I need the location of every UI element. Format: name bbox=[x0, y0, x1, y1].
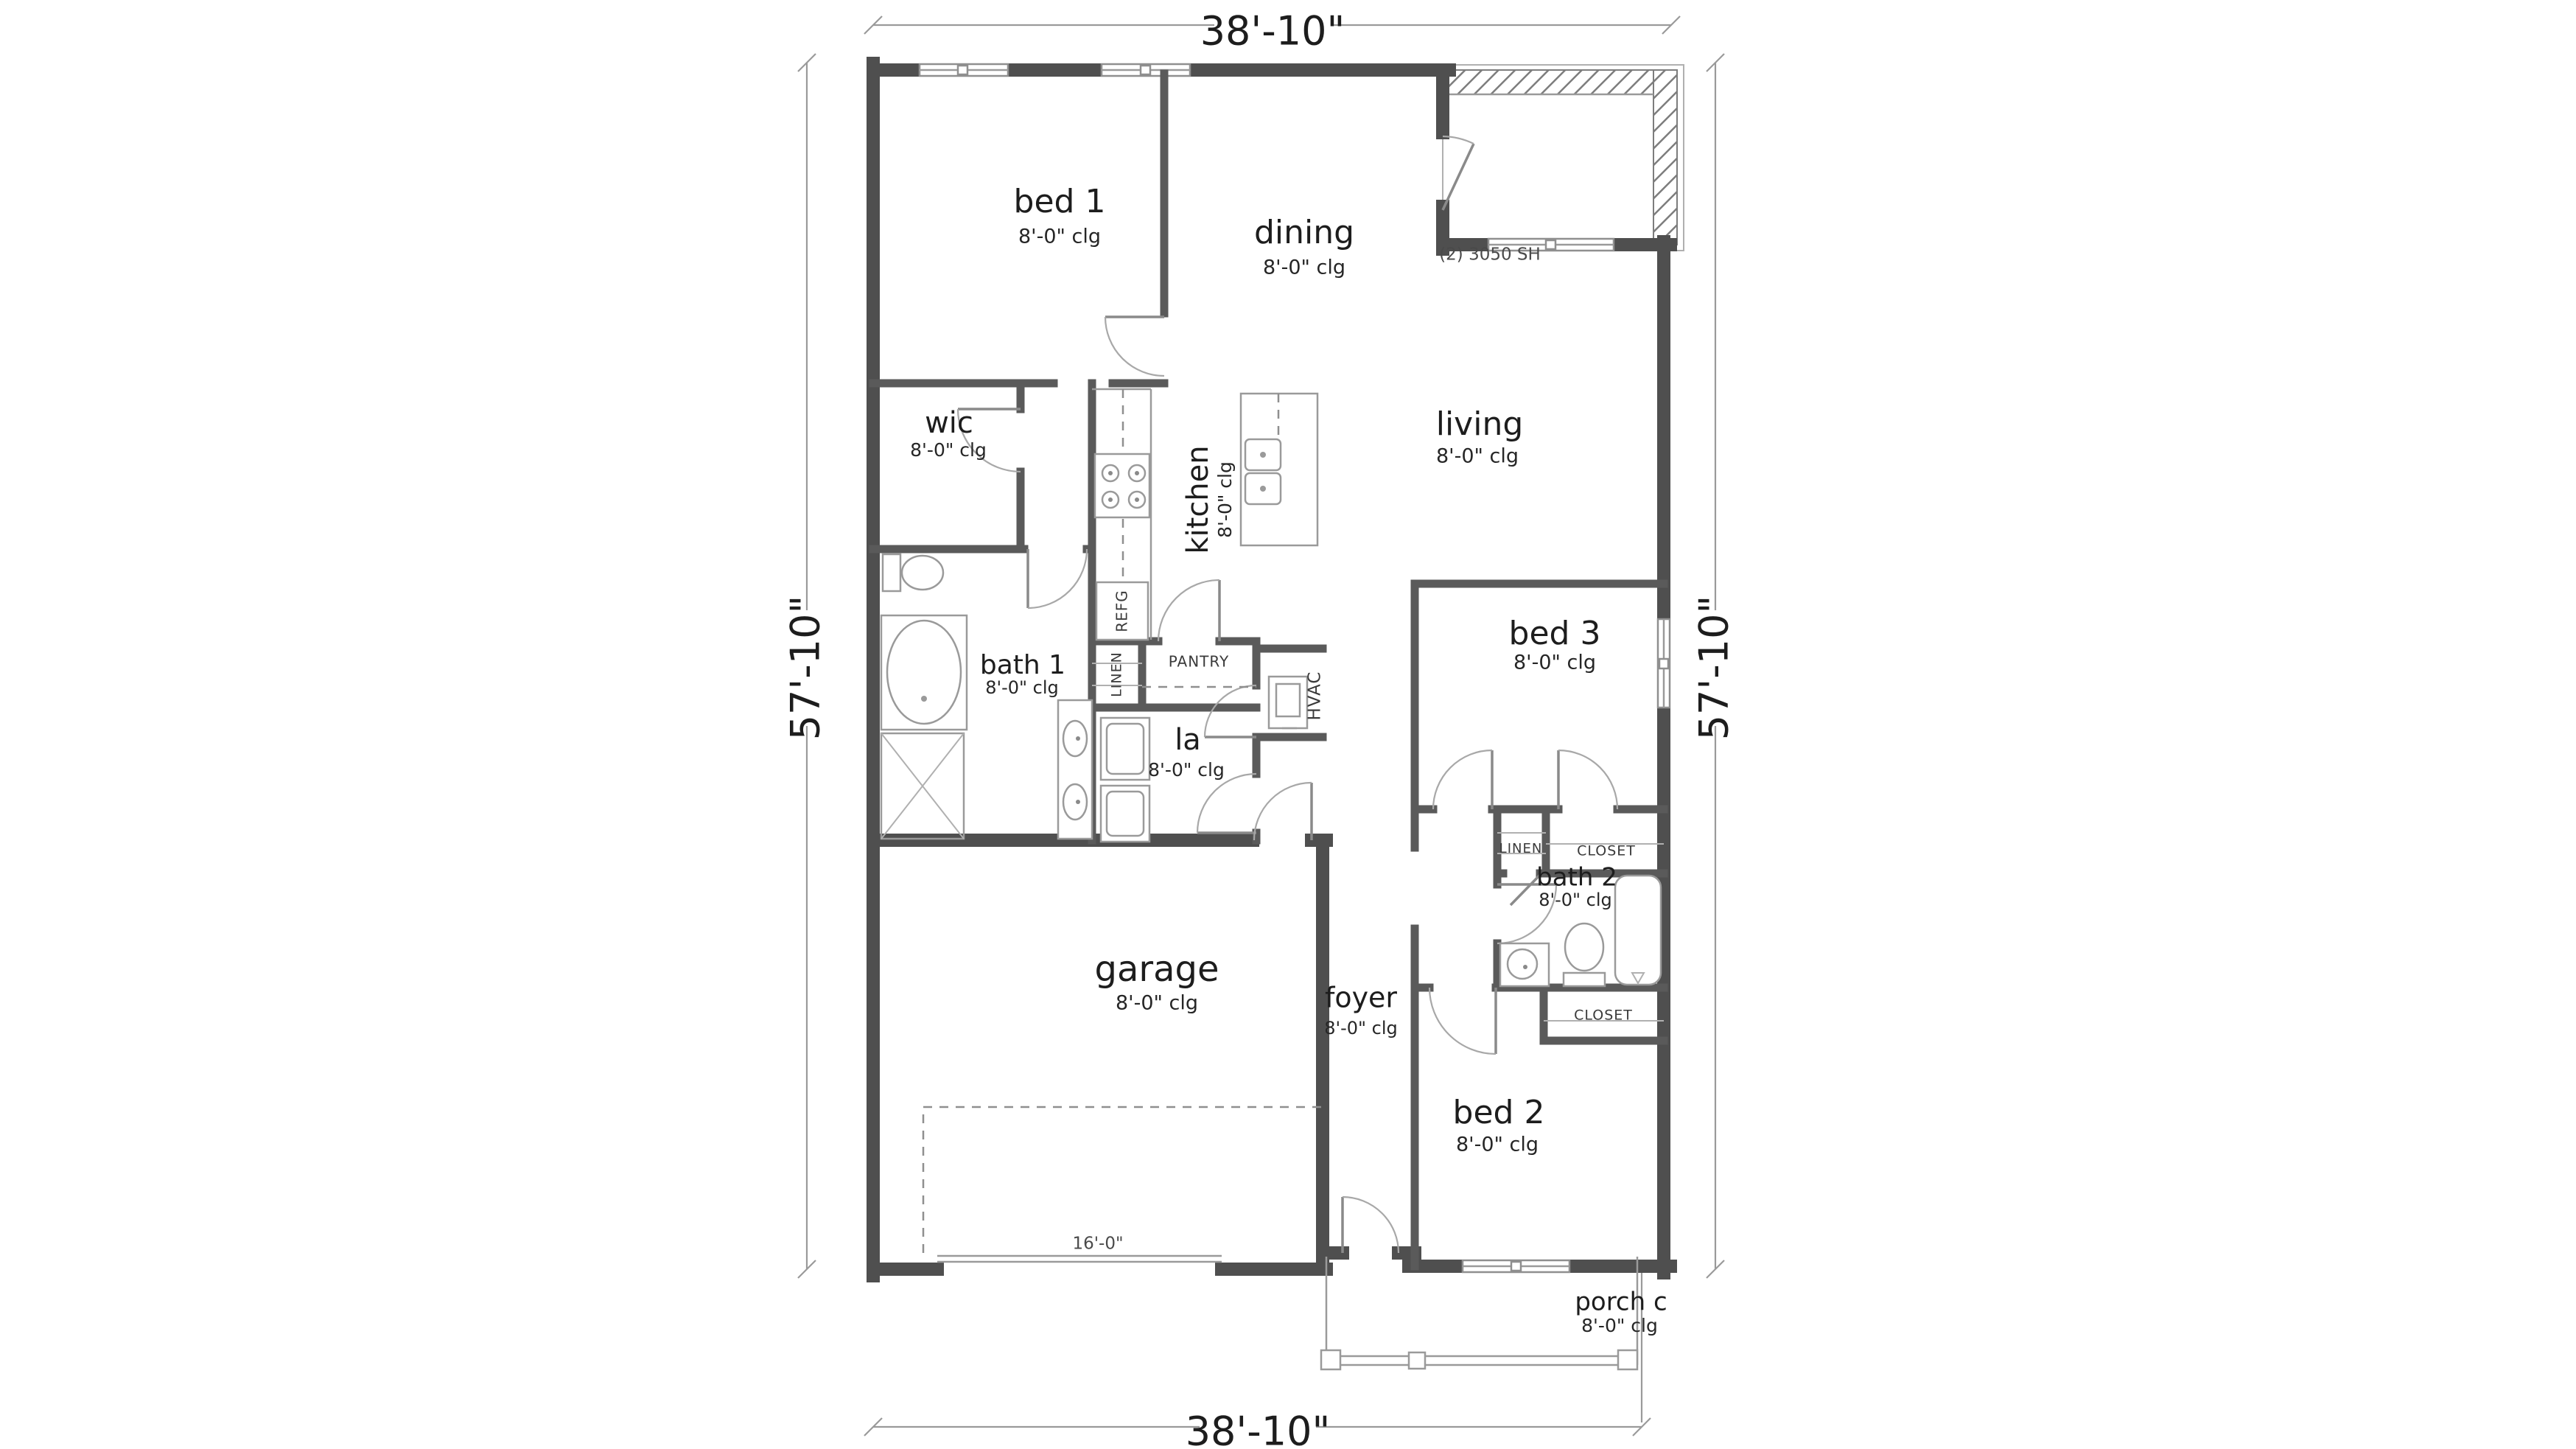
door-pantry bbox=[1158, 580, 1219, 641]
room-label-bed-1: bed 1 bbox=[1014, 183, 1106, 220]
window-bed2 bbox=[1463, 1260, 1569, 1272]
refrigerator: REFG bbox=[1096, 582, 1148, 640]
door-bath1 bbox=[1028, 549, 1087, 608]
dimension-bottom: 38'-10" bbox=[1186, 1408, 1331, 1449]
refrigerator-label: REFG bbox=[1113, 590, 1131, 632]
room-label-bed-3: bed 3 bbox=[1509, 615, 1601, 652]
closet-bath2-label: CLOSET bbox=[1577, 843, 1636, 859]
room-clg-foyer: 8'-0" clg bbox=[1324, 1018, 1398, 1038]
floor-plan-page: 38'-10" 38'-10" 57'-10" 57'-10" bbox=[0, 0, 2576, 1449]
room-clg-wic: 8'-0" clg bbox=[910, 439, 987, 461]
pantry-label: PANTRY bbox=[1169, 653, 1229, 671]
garage-door: 16'-0" bbox=[937, 1235, 1222, 1263]
room-clg-bath-2: 8'-0" clg bbox=[1539, 890, 1612, 910]
door-front-entry bbox=[1343, 1197, 1399, 1253]
door-dining-porch bbox=[1443, 136, 1474, 210]
garden-tub bbox=[881, 615, 967, 730]
tub-bath2 bbox=[1615, 876, 1661, 985]
vanity-bath1 bbox=[1058, 700, 1092, 839]
dimension-left: 57'-10" bbox=[783, 596, 829, 741]
room-label-dining: dining bbox=[1254, 214, 1354, 251]
room-clg-bed-2: 8'-0" clg bbox=[1456, 1134, 1539, 1156]
room-label-wic: wic bbox=[925, 406, 973, 440]
garage-door-label: 16'-0" bbox=[1072, 1235, 1123, 1254]
door-bed1 bbox=[1105, 317, 1164, 376]
room-clg-bed-3: 8'-0" clg bbox=[1513, 652, 1596, 674]
shower bbox=[881, 733, 964, 839]
room-label-porch-c: porch c bbox=[1575, 1288, 1667, 1317]
room-label-bath-2: bath 2 bbox=[1536, 863, 1617, 893]
bath2-fixtures bbox=[1497, 833, 1664, 1021]
room-label-bath-1: bath 1 bbox=[980, 650, 1065, 680]
linen-hall-label: LINEN bbox=[1109, 652, 1125, 697]
room-clg-dining: 8'-0" clg bbox=[1263, 256, 1345, 279]
dryer bbox=[1101, 786, 1149, 842]
garage-elements: 16'-0" bbox=[923, 1107, 1323, 1262]
linen-bath2-label: LINEN bbox=[1499, 841, 1543, 856]
room-label-la: la bbox=[1175, 723, 1201, 757]
room-clg-bed-1: 8'-0" clg bbox=[1018, 226, 1101, 248]
door-bed3 bbox=[1433, 750, 1492, 809]
door-garage-entry bbox=[1254, 783, 1312, 840]
hvac-label: HVAC bbox=[1306, 671, 1325, 721]
room-clg-bath-1: 8'-0" clg bbox=[985, 677, 1059, 698]
stove bbox=[1095, 454, 1149, 517]
window-bed1 bbox=[920, 64, 1008, 76]
dimension-right: 57'-10" bbox=[1691, 596, 1737, 741]
toilet-bath2 bbox=[1564, 923, 1605, 986]
door-bed2 bbox=[1429, 988, 1496, 1054]
vanity-bath2 bbox=[1500, 943, 1549, 986]
room-clg-kitchen: 8'-0" clg bbox=[1214, 461, 1236, 538]
floor-plan-drawing: 38'-10" 38'-10" 57'-10" 57'-10" bbox=[0, 0, 2576, 1449]
window-note-label: (2) 3050 SH bbox=[1439, 245, 1541, 265]
toilet-bath1 bbox=[883, 554, 943, 591]
window-bed3 bbox=[1658, 619, 1670, 708]
room-label-bed-2: bed 2 bbox=[1453, 1094, 1545, 1131]
window-dining bbox=[1102, 64, 1190, 76]
room-clg-porch-c: 8'-0" clg bbox=[1581, 1315, 1658, 1336]
dimension-top: 38'-10" bbox=[1200, 8, 1345, 55]
room-label-foyer: foyer bbox=[1325, 982, 1397, 1014]
hvac-unit bbox=[1269, 677, 1307, 728]
room-label-living: living bbox=[1436, 405, 1524, 443]
closet-bed2-label: CLOSET bbox=[1574, 1008, 1633, 1024]
room-clg-garage: 8'-0" clg bbox=[1116, 992, 1198, 1015]
room-labels: bed 1 8'-0" clg dining 8'-0" clg living … bbox=[910, 183, 1667, 1336]
washer bbox=[1101, 718, 1149, 780]
room-clg-la: 8'-0" clg bbox=[1148, 759, 1225, 781]
room-label-garage: garage bbox=[1094, 949, 1219, 990]
door-bed3-closet bbox=[1558, 750, 1617, 809]
room-clg-living: 8'-0" clg bbox=[1436, 445, 1519, 468]
porch-rear bbox=[1443, 65, 1684, 251]
kitchen-island bbox=[1241, 394, 1317, 545]
room-label-kitchen: kitchen bbox=[1181, 445, 1215, 554]
door-laundry bbox=[1197, 774, 1256, 833]
